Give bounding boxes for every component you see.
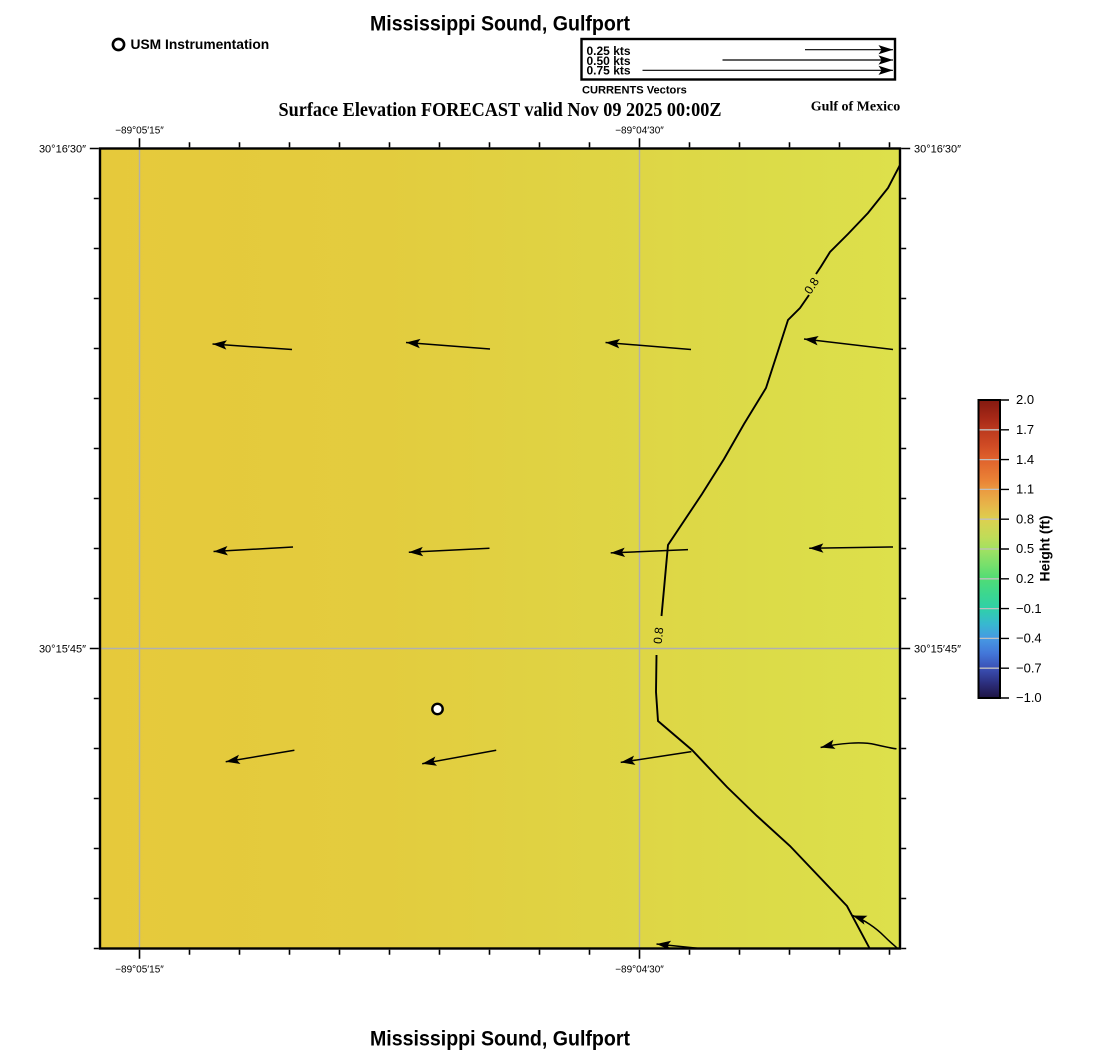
svg-text:0.8: 0.8 (651, 626, 667, 644)
svg-text:0.8: 0.8 (1016, 511, 1034, 526)
svg-text:−0.4: −0.4 (1016, 631, 1042, 646)
svg-text:1.7: 1.7 (1016, 422, 1034, 437)
svg-text:0.2: 0.2 (1016, 571, 1034, 586)
svg-text:1.4: 1.4 (1016, 452, 1034, 467)
svg-text:−1.0: −1.0 (1016, 690, 1042, 705)
svg-text:−89°04′30″: −89°04′30″ (615, 965, 664, 976)
svg-text:Surface Elevation FORECAST val: Surface Elevation FORECAST valid Nov 09 … (279, 99, 722, 121)
svg-text:−0.1: −0.1 (1016, 601, 1042, 616)
svg-text:−89°05′15″: −89°05′15″ (115, 126, 164, 137)
svg-text:2.0: 2.0 (1016, 392, 1034, 407)
svg-text:Mississippi Sound, Gulfport: Mississippi Sound, Gulfport (370, 13, 630, 36)
svg-text:−0.7: −0.7 (1016, 660, 1042, 675)
svg-text:30°15′45″: 30°15′45″ (914, 644, 961, 656)
svg-text:0.75 kts: 0.75 kts (587, 64, 631, 78)
svg-text:USM Instrumentation: USM Instrumentation (131, 37, 270, 52)
svg-text:Mississippi Sound, Gulfport: Mississippi Sound, Gulfport (370, 1028, 630, 1050)
svg-text:30°16′30″: 30°16′30″ (39, 144, 86, 156)
svg-text:30°16′30″: 30°16′30″ (914, 144, 961, 156)
svg-text:0.5: 0.5 (1016, 541, 1034, 556)
svg-text:Gulf of Mexico: Gulf of Mexico (811, 100, 900, 115)
svg-text:30°15′45″: 30°15′45″ (39, 644, 86, 656)
svg-text:1.1: 1.1 (1016, 482, 1034, 497)
svg-text:Height (ft): Height (ft) (1037, 515, 1053, 581)
svg-text:−89°04′30″: −89°04′30″ (615, 126, 664, 137)
svg-text:CURRENTS Vectors: CURRENTS Vectors (582, 84, 687, 96)
svg-text:−89°05′15″: −89°05′15″ (115, 965, 164, 976)
